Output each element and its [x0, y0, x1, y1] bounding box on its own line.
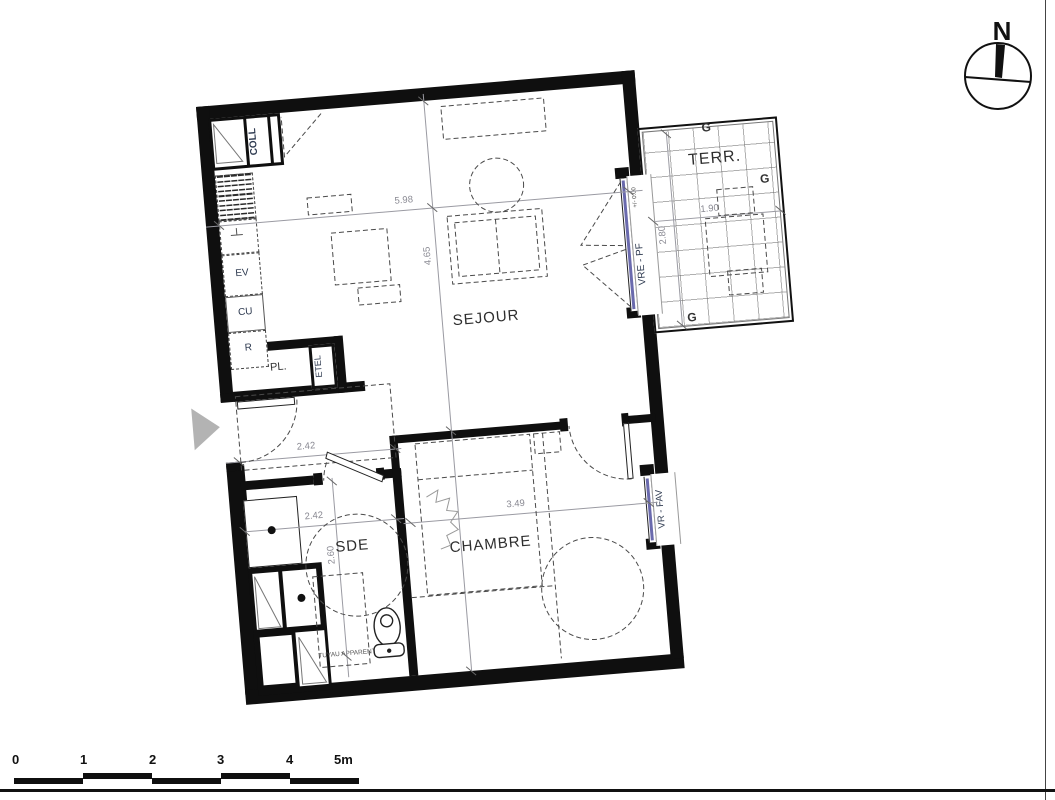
chair-outline-1	[307, 194, 352, 215]
wardrobe-line-h	[412, 586, 555, 598]
wardrobe-line-v	[543, 433, 562, 658]
window-swing-upper	[576, 182, 626, 250]
entry-clearance-rect	[235, 384, 396, 471]
scale-segment	[152, 778, 221, 784]
compass-chord	[965, 77, 1031, 82]
bed-pillow-line	[418, 470, 533, 480]
scale-segment	[221, 773, 290, 779]
sheet-border-bottom	[0, 789, 1055, 792]
washbasin-drain-dot	[267, 526, 276, 535]
shower-outline	[313, 573, 370, 668]
floor-plan: TERR. G G G 1.90 2.80 +/- 0.00 VRE - PF …	[196, 55, 866, 725]
duct-triangle-icon	[214, 122, 243, 163]
cabinet-knob-dot	[297, 594, 306, 603]
round-table-outline	[467, 156, 525, 214]
terrace-table-outline	[717, 187, 755, 216]
duct-triangle-icon	[299, 635, 327, 684]
north-label: N	[993, 16, 1012, 46]
sde-turning-circle	[302, 510, 412, 620]
scale-label-1: 1	[80, 752, 87, 767]
chambre-turning-circle	[538, 533, 648, 643]
scale-segment	[83, 773, 152, 779]
scale-segment	[290, 778, 359, 784]
scale-label-5m: 5m	[334, 752, 353, 767]
chair-outline-2	[358, 285, 401, 305]
scale-label-0: 0	[12, 752, 19, 767]
entrance-door-arc	[237, 400, 302, 463]
sheet-border-right	[1045, 0, 1046, 800]
north-compass: N	[962, 6, 1038, 118]
side-table-outline	[331, 228, 391, 285]
chambre-door-arc	[569, 421, 632, 484]
bed-outline	[415, 434, 542, 595]
dining-table-divider	[495, 219, 500, 273]
terrace-chair-outline	[728, 268, 764, 295]
compass-needle	[995, 44, 1005, 78]
window-swing-lower	[582, 249, 632, 311]
sideboard-outline	[441, 98, 546, 140]
scale-label-2: 2	[149, 752, 156, 767]
toilet-icon	[371, 607, 405, 658]
faucet-icon	[230, 228, 243, 236]
scale-segment	[14, 778, 83, 784]
terrace-seat-outline	[705, 214, 768, 277]
coll-door-swing	[281, 114, 324, 157]
sde-door-leaf	[325, 448, 384, 487]
plan-annotations-svg	[196, 55, 866, 725]
chambre-clothes-squiggle	[426, 489, 461, 550]
duct-triangle-icon	[255, 575, 281, 629]
nightstand-outline	[534, 432, 562, 454]
scale-label-4: 4	[286, 752, 293, 767]
scale-label-3: 3	[217, 752, 224, 767]
entrance-arrow	[191, 406, 221, 450]
